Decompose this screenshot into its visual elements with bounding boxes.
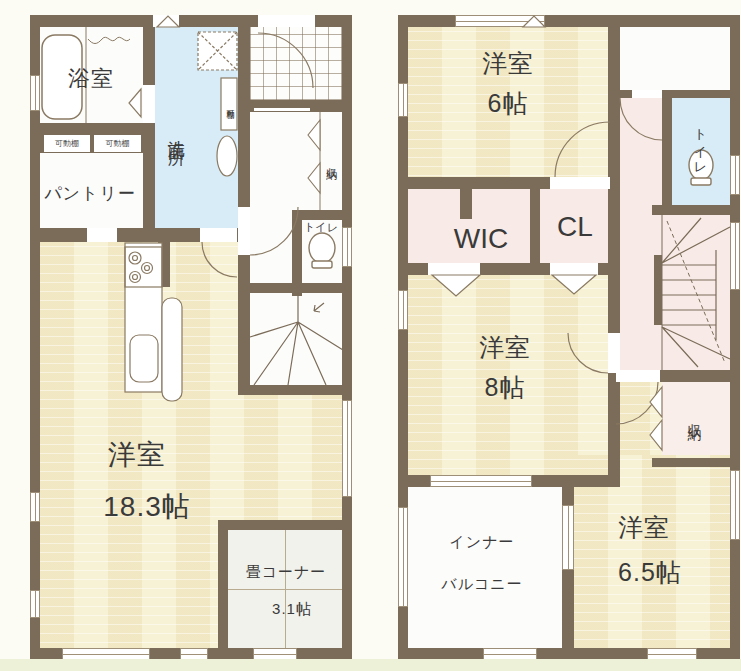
entrance-step-line [254, 108, 310, 111]
window [342, 227, 352, 267]
label-storage-2f: 収納 [686, 413, 704, 419]
label-pantry: パントリー [44, 182, 136, 205]
wall [250, 283, 343, 293]
label-washroom: 洗面所 [165, 127, 188, 139]
label-bedroom6-size: 6帖 [488, 87, 529, 120]
label-living-size: 18.3帖 [103, 488, 191, 526]
window [730, 222, 740, 290]
label-cl: CL [557, 211, 593, 243]
wall [30, 15, 40, 660]
wall [218, 520, 343, 530]
bathroom-door-opening [143, 85, 155, 123]
label-inner-balcony-1: インナー [449, 533, 514, 552]
pantry-door-opening [87, 228, 117, 242]
label-bedroom6: 洋室 [482, 47, 534, 80]
room-storage-2f [662, 382, 730, 458]
wall [158, 242, 170, 287]
wall [652, 205, 730, 215]
front-door-opening [258, 15, 315, 27]
wall [218, 520, 228, 648]
window [455, 15, 545, 27]
label-bedroom65: 洋室 [618, 511, 670, 544]
tatami-grid-line [228, 589, 343, 590]
window [30, 590, 40, 618]
window [398, 290, 408, 330]
floor-1-plan: 可動棚 可動棚 [30, 15, 352, 660]
window [398, 507, 408, 607]
shelf-label: 可動棚 [106, 138, 130, 149]
wall [143, 27, 155, 228]
back-door-opening [153, 15, 179, 27]
label-toilet-2f: トイレ [691, 120, 709, 170]
label-toilet-1f: トイレ [304, 220, 338, 235]
washroom-door-opening [200, 228, 237, 242]
wall [662, 90, 672, 205]
floorplan-canvas: 可動棚 可動棚 [0, 0, 741, 671]
window [342, 400, 352, 497]
room-inner-balcony [408, 487, 562, 648]
label-bathroom: 浴室 [68, 64, 114, 94]
label-tatami-corner: 畳コーナー [246, 563, 327, 582]
window [30, 75, 40, 111]
bedroom8-door-opening [608, 333, 620, 373]
wall [530, 189, 540, 263]
wall [342, 15, 352, 660]
movable-shelf-left: 可動棚 [43, 134, 91, 153]
window [730, 155, 740, 195]
room-stairs-1f [250, 293, 343, 385]
label-tatami-size: 3.1帖 [272, 600, 312, 619]
wall [652, 458, 730, 467]
room-upper-void [620, 27, 730, 90]
shelf-label: 可動棚 [55, 138, 79, 149]
ground-strip [0, 659, 741, 671]
wall [654, 255, 662, 325]
window [562, 505, 574, 570]
label-wic: WIC [454, 223, 508, 255]
room-entrance [250, 27, 343, 100]
wall [608, 27, 620, 487]
bedroom6-door-opening [550, 177, 610, 189]
wall [398, 15, 740, 27]
label-inner-balcony-2: バルコニー [441, 575, 522, 594]
bedroom65-door-opening [616, 370, 660, 382]
label-bedroom8-size: 8帖 [485, 371, 526, 404]
label-storage-1f: 収納 [324, 159, 339, 163]
wall [730, 15, 740, 660]
window [430, 475, 532, 487]
floor-2-plan: 洋室 6帖 WIC CL トイレ 洋室 8帖 収納 インナー バルコニー 洋室 … [398, 15, 740, 660]
window [730, 470, 740, 540]
wall [460, 189, 472, 219]
label-movable-shelf: 可動棚 [224, 103, 235, 106]
window [30, 492, 40, 522]
label-bedroom8: 洋室 [479, 331, 531, 364]
hallway-door-opening [238, 207, 250, 255]
toilet-door-leaf [632, 90, 662, 98]
wall [238, 385, 343, 395]
window [398, 83, 408, 117]
label-bedroom65-size: 6.5帖 [618, 556, 682, 589]
room-bedroom-65-arm [616, 382, 662, 455]
cl-opening [550, 263, 598, 275]
wic-opening [428, 263, 480, 275]
label-living-room: 洋室 [108, 436, 166, 474]
movable-shelf-right: 可動棚 [93, 134, 142, 153]
